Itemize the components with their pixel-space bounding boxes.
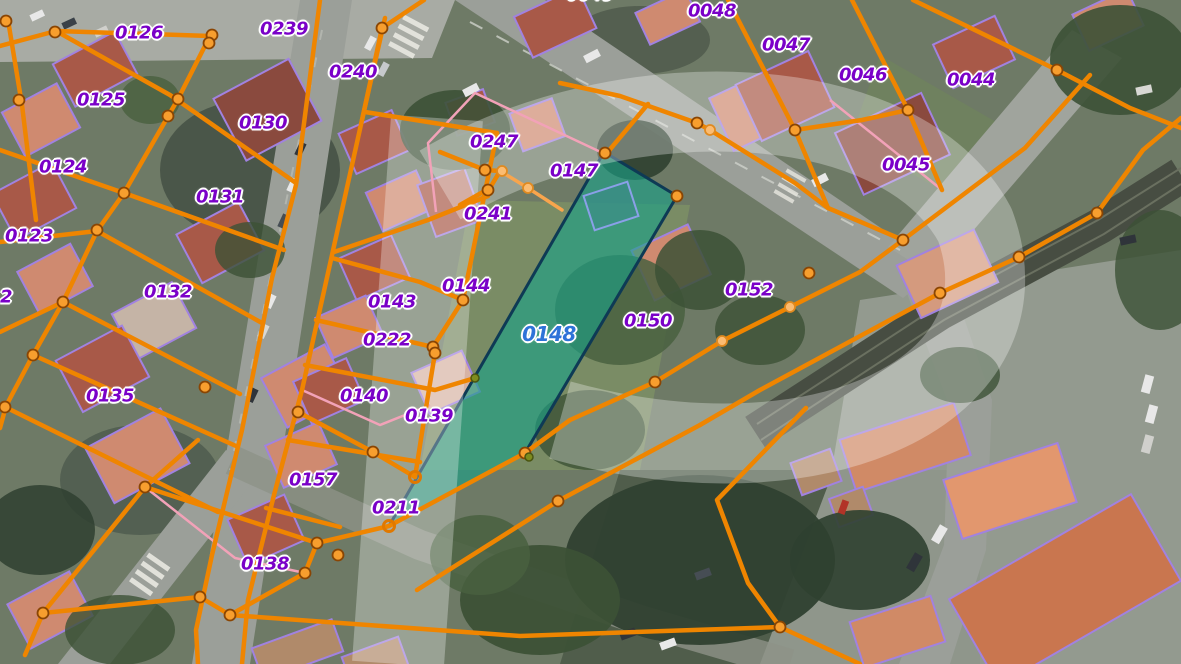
parcel-label[interactable]: 0152 [725,280,773,301]
parcel-label[interactable]: 0211 [372,498,420,519]
parcel-label[interactable]: 0045 [882,155,930,176]
parcel-label[interactable]: 0048 [688,1,736,22]
parcel-label[interactable]: 0157 [289,470,337,491]
parcel-label[interactable]: 0046 [839,65,887,86]
parcel-label[interactable]: 0150 [624,311,672,332]
parcel-label[interactable]: 0130 [239,113,287,134]
parcel-label[interactable]: 0241 [464,204,512,225]
parcel-label[interactable]: 0247 [470,132,518,153]
parcel-label[interactable]: 0044 [947,70,995,91]
parcel-label[interactable]: 2 [0,287,12,308]
parcel-label[interactable]: 0047 [762,35,810,56]
parcel-label[interactable]: 0240 [329,62,377,83]
map-scene [0,0,1181,664]
parcel-label[interactable]: 0140 [340,386,388,407]
parcel-label[interactable]: 0123 [5,226,53,247]
parcel-label[interactable]: 0222 [363,330,411,351]
parcel-label[interactable]: 0135 [86,386,134,407]
parcel-label[interactable]: 0131 [196,187,244,208]
parcel-label[interactable]: 0049 [566,0,614,5]
parcel-label[interactable]: 0124 [39,157,87,178]
parcel-label[interactable]: 0144 [442,276,490,297]
parcel-label[interactable]: 0132 [144,282,192,303]
parcel-label[interactable]: 0147 [550,161,598,182]
parcel-label-highlighted[interactable]: 0148 [522,322,576,346]
parcel-label[interactable]: 0139 [405,406,453,427]
parcel-label[interactable]: 0143 [368,292,416,313]
parcel-label[interactable]: 0126 [115,23,163,44]
parcel-label[interactable]: 0125 [77,90,125,111]
parcel-label[interactable]: 0043 [1020,0,1068,2]
parcel-label[interactable]: 0239 [260,19,308,40]
parcel-label[interactable]: 0138 [241,554,289,575]
map-viewport[interactable]: 0126023902400125013001240131012301322013… [0,0,1181,664]
